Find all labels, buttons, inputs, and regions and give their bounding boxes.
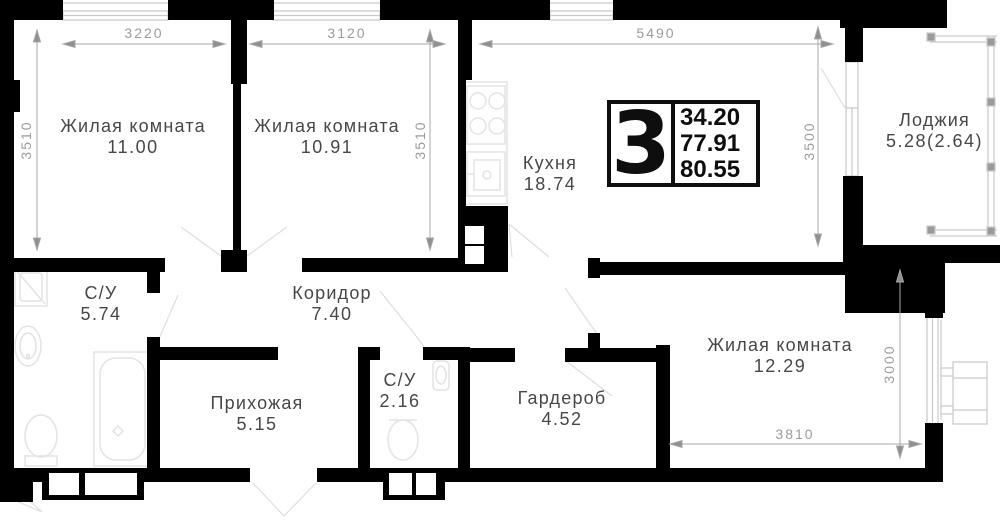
dim-kitchen-right: 3500 — [801, 96, 817, 186]
kitchen-sink-icon — [467, 152, 505, 196]
door-swing-room1 — [181, 227, 221, 256]
dim-room3-bottom: 3810 — [750, 426, 840, 442]
room-label-loggia: Лоджия 5.28(2.64) — [862, 110, 1000, 152]
dim-top-room1: 3220 — [99, 25, 189, 41]
dim-room3-right: 3000 — [881, 319, 897, 409]
room-label-hallway: Прихожая 5.15 — [187, 393, 327, 435]
apartment-badge: 3 34.20 77.91 80.55 — [607, 100, 760, 187]
window-kitchen — [545, 3, 618, 20]
wc-toilet-icon — [388, 420, 418, 460]
room-label-wc: С/У 2.16 — [360, 370, 440, 412]
area-without-loggia-value: 77.91 — [680, 131, 756, 157]
dim-left-room1: 3510 — [18, 95, 34, 185]
window-room3 — [927, 316, 941, 424]
shower-icon — [15, 268, 47, 306]
window-room2 — [268, 3, 385, 20]
ac-unit-icon — [941, 362, 987, 424]
dim-right-room2: 3510 — [412, 95, 428, 185]
floor-plan-drawing — [0, 0, 1000, 525]
dim-top-kitchen: 5490 — [611, 25, 701, 41]
living-area-value: 34.20 — [680, 105, 756, 131]
door-swing-entrance — [253, 483, 316, 516]
door-swing-bathroom — [159, 295, 178, 339]
door-swing-kitchen — [509, 224, 549, 257]
room-label-room3: Жилая комната 12.29 — [695, 335, 865, 377]
window-room1 — [58, 3, 173, 20]
room-label-room1: Жилая комната 11.00 — [43, 116, 223, 158]
floor-plan: 3 34.20 77.91 80.55 Жилая комната 11.00 … — [0, 0, 1000, 525]
toilet-icon — [25, 415, 57, 466]
room-label-kitchen: Кухня 18.74 — [505, 153, 595, 195]
room-label-bathroom: С/У 5.74 — [61, 283, 141, 325]
door-swing-room3 — [565, 288, 597, 334]
total-area-value: 80.55 — [680, 157, 756, 183]
room-label-room2: Жилая комната 10.91 — [237, 116, 417, 158]
sink-icon — [15, 326, 41, 366]
door-swing-room2 — [247, 227, 287, 256]
dim-top-room2: 3120 — [302, 25, 392, 41]
balcony-door-window — [846, 62, 858, 176]
room-count: 3 — [611, 104, 675, 183]
room-label-wardrobe: Гардероб 4.52 — [492, 388, 632, 430]
bathtub-icon — [94, 352, 151, 466]
door-swing-balcony — [821, 68, 845, 108]
badge-areas: 34.20 77.91 80.55 — [675, 104, 756, 183]
room-label-corridor: Коридор 7.40 — [272, 283, 392, 325]
